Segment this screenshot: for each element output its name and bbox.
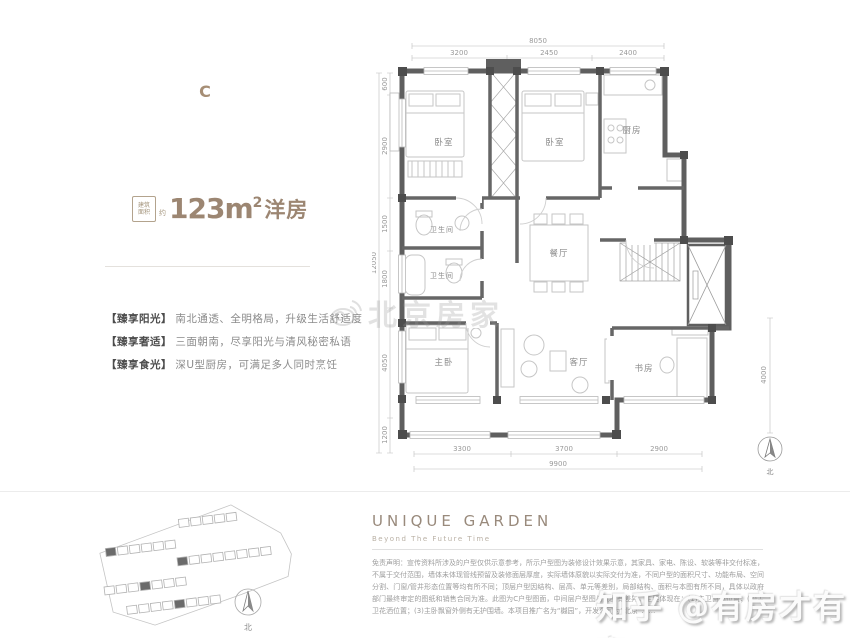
feature-desc: 深U型厨房，可满足多人同时烹饪 <box>175 359 337 371</box>
area-box-line2: 面积 <box>138 209 150 216</box>
brand-subtitle: Beyond The Future Time <box>372 535 552 543</box>
feature-item-sunlight: 【臻享阳光】 南北通透、全明格局，升级生活舒适度 <box>106 312 362 326</box>
room-label-kitchen: 厨房 <box>622 125 641 136</box>
dim-top-total: 8050 <box>529 37 547 45</box>
dim-top-2: 2450 <box>540 49 558 57</box>
room-label-bath1: 卫生间 <box>430 225 454 234</box>
feature-item-kitchen: 【臻享食光】 深U型厨房，可满足多人同时烹饪 <box>106 358 362 372</box>
dim-top-1: 3200 <box>450 49 468 57</box>
dim-right-1: 4000 <box>760 366 768 384</box>
dim-left-4: 1800 <box>381 270 389 288</box>
feature-tag: 【臻享阳光】 <box>106 313 172 325</box>
area-suffix: 洋房 <box>264 194 308 224</box>
room-label-bath2: 卫生间 <box>430 271 454 280</box>
stairs <box>620 243 680 281</box>
elevator <box>688 245 726 325</box>
footer-separator <box>0 491 850 492</box>
feature-tag: 【臻享食光】 <box>106 359 172 371</box>
plan-dimensions <box>376 43 773 472</box>
dim-left-5: 4050 <box>381 354 389 372</box>
dim-left-1: 600 <box>381 77 389 90</box>
room-label-master: 主卧 <box>434 357 453 368</box>
area-approx-label: 约 <box>159 208 166 218</box>
room-label-bedroom1: 卧室 <box>434 137 453 148</box>
feature-item-luxury: 【臻享奢适】 三面朝南，尽享阳光与清风秘密私语 <box>106 335 362 349</box>
feature-tag: 【臻享奢适】 <box>106 336 172 348</box>
zhihu-watermark: 知乎 @有房才有家 <box>596 582 850 638</box>
floorplan-brochure-page: C 建筑 面积 约 123m 2 洋房 【臻享阳光】 南北通透、全明格局，升级生… <box>0 0 850 638</box>
shaft-lattice <box>490 71 517 199</box>
left-divider-line <box>105 266 310 267</box>
site-plan: 北 <box>88 500 303 636</box>
feature-desc: 三面朝南，尽享阳光与清风秘密私语 <box>175 336 351 348</box>
feature-list: 【臻享阳光】 南北通透、全明格局，升级生活舒适度 【臻享奢适】 三面朝南，尽享阳… <box>106 312 362 381</box>
brand-divider-line <box>372 549 763 550</box>
area-box-line1: 建筑 <box>138 202 150 209</box>
room-label-dining: 餐厅 <box>549 249 568 259</box>
dim-left-total: 12050 <box>372 252 378 274</box>
weibo-watermark-text: 北京房家 <box>368 292 504 334</box>
plan-compass-label: 北 <box>767 468 774 476</box>
weibo-watermark: 北京房家 <box>328 292 504 334</box>
dim-left-6: 1200 <box>381 426 389 444</box>
unit-type-letter: C <box>130 84 280 100</box>
brand-block: UNIQUE GARDEN Beyond The Future Time <box>372 512 552 543</box>
area-superscript: 2 <box>253 196 263 210</box>
weibo-icon <box>328 297 364 329</box>
plan-windows <box>390 68 704 439</box>
dim-bottom-1: 3300 <box>453 445 471 453</box>
plan-compass-icon: 北 <box>758 437 782 476</box>
dim-left-3: 1500 <box>381 215 389 233</box>
floorplan-drawing: 8050 3200 2450 2400 3300 3700 2900 9900 … <box>372 33 790 488</box>
unit-area-line: 建筑 面积 约 123m 2 洋房 <box>132 192 308 225</box>
room-label-study: 书房 <box>634 363 653 374</box>
dim-bottom-total: 9900 <box>549 460 567 468</box>
area-label-box: 建筑 面积 <box>132 196 156 222</box>
brand-title: UNIQUE GARDEN <box>372 512 552 530</box>
room-label-bedroom2: 卧室 <box>545 137 564 148</box>
dim-bottom-3: 2900 <box>650 445 668 453</box>
dim-left-2: 2900 <box>381 137 389 155</box>
site-compass-label: 北 <box>244 623 252 632</box>
area-number: 123m <box>169 192 253 225</box>
dim-top-3: 2400 <box>619 49 637 57</box>
room-label-living: 客厅 <box>569 357 588 368</box>
dim-bottom-2: 3700 <box>555 445 573 453</box>
